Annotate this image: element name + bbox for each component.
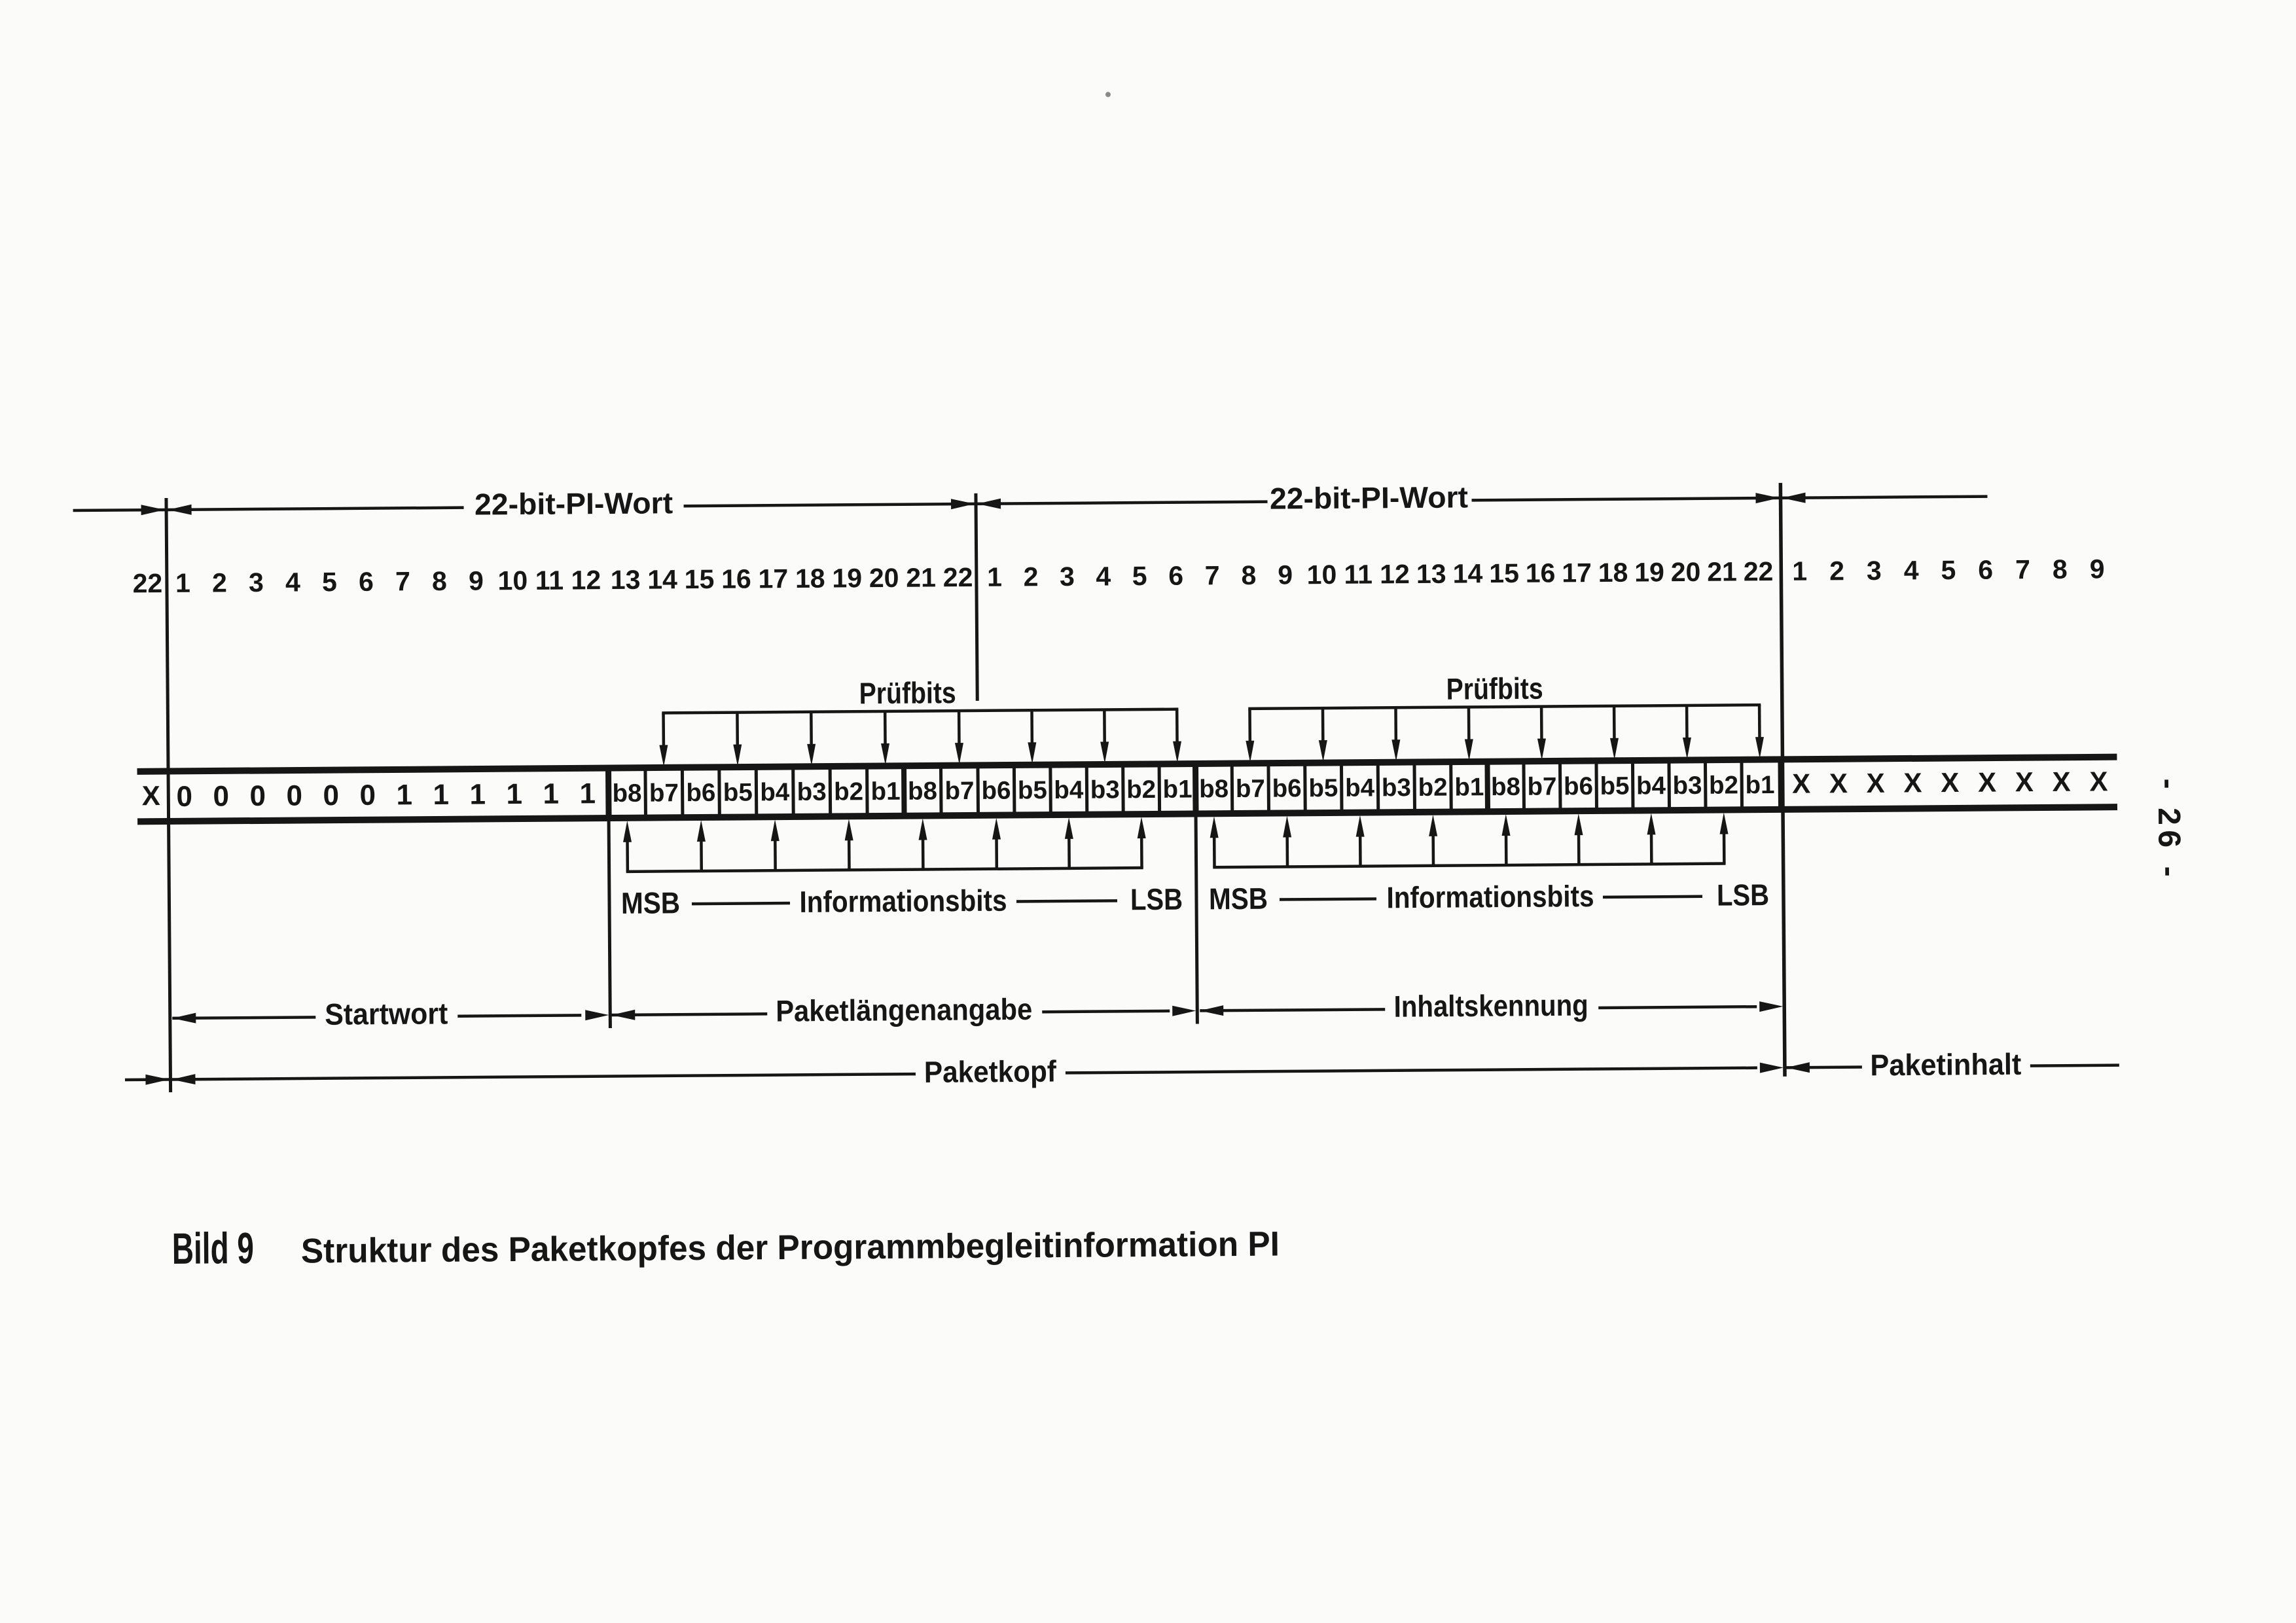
svg-text:2: 2 <box>212 567 227 597</box>
svg-text:1: 1 <box>987 562 1002 592</box>
svg-text:14: 14 <box>1453 558 1483 588</box>
svg-text:19: 19 <box>1634 557 1664 587</box>
svg-text:3: 3 <box>1867 556 1882 586</box>
svg-text:22: 22 <box>943 562 973 592</box>
svg-text:8: 8 <box>432 566 447 596</box>
svg-text:5: 5 <box>322 567 337 597</box>
svg-text:0: 0 <box>323 779 339 811</box>
svg-text:b5: b5 <box>723 778 753 806</box>
svg-text:b3: b3 <box>1382 774 1411 802</box>
svg-text:b6: b6 <box>1564 772 1593 800</box>
svg-text:0: 0 <box>176 781 192 813</box>
svg-text:b2: b2 <box>1126 776 1156 804</box>
svg-text:b8: b8 <box>1199 775 1229 803</box>
svg-text:b6: b6 <box>686 779 715 807</box>
svg-text:6: 6 <box>359 567 374 597</box>
svg-text:LSB: LSB <box>1717 878 1769 912</box>
svg-text:X: X <box>2089 766 2108 796</box>
svg-text:12: 12 <box>571 565 601 595</box>
svg-text:MSB: MSB <box>621 885 680 920</box>
svg-text:9: 9 <box>2090 554 2105 584</box>
svg-text:8: 8 <box>1241 560 1256 590</box>
svg-text:19: 19 <box>832 563 862 593</box>
svg-text:9: 9 <box>469 565 484 596</box>
svg-text:17: 17 <box>758 563 788 594</box>
svg-text:X: X <box>2015 766 2034 797</box>
svg-text:7: 7 <box>1205 560 1220 590</box>
svg-text:X: X <box>1941 767 1959 798</box>
svg-text:b8: b8 <box>1491 773 1520 801</box>
svg-text:7: 7 <box>395 566 410 596</box>
svg-text:5: 5 <box>1132 561 1147 591</box>
svg-text:b1: b1 <box>1454 773 1484 801</box>
svg-text:0: 0 <box>359 779 376 811</box>
svg-text:20: 20 <box>1671 557 1701 587</box>
svg-text:1: 1 <box>1792 556 1807 586</box>
svg-text:15: 15 <box>1489 558 1519 588</box>
svg-text:b3: b3 <box>797 778 827 806</box>
svg-text:X: X <box>142 780 160 811</box>
svg-text:22: 22 <box>1744 556 1774 586</box>
svg-text:b8: b8 <box>612 779 641 808</box>
svg-text:b7: b7 <box>649 779 679 807</box>
svg-text:LSB: LSB <box>1130 882 1183 917</box>
svg-text:20: 20 <box>869 563 899 593</box>
svg-text:12: 12 <box>1380 559 1410 589</box>
svg-text:1: 1 <box>433 779 449 811</box>
svg-text:b2: b2 <box>834 777 863 806</box>
svg-text:b6: b6 <box>981 777 1011 805</box>
svg-text:10: 10 <box>1307 560 1337 590</box>
svg-text:Paketkopf: Paketkopf <box>924 1054 1057 1089</box>
svg-text:b7: b7 <box>1236 775 1265 803</box>
svg-text:22-bit-PI-Wort: 22-bit-PI-Wort <box>475 486 673 521</box>
svg-text:3: 3 <box>1060 562 1075 592</box>
svg-text:b8: b8 <box>908 777 937 805</box>
svg-text:X: X <box>1903 767 1922 798</box>
svg-text:2: 2 <box>1023 562 1038 592</box>
svg-text:18: 18 <box>795 563 825 594</box>
svg-text:16: 16 <box>1526 558 1556 588</box>
svg-text:6: 6 <box>1168 561 1183 591</box>
svg-text:b4: b4 <box>1054 776 1084 804</box>
svg-text:17: 17 <box>1562 558 1592 588</box>
svg-text:14: 14 <box>647 564 677 594</box>
svg-text:Struktur des Paketkopfes der P: Struktur des Paketkopfes der Programmbeg… <box>301 1225 1280 1271</box>
svg-text:1: 1 <box>396 779 412 811</box>
svg-text:b4: b4 <box>760 778 790 806</box>
svg-text:Inhaltskennung: Inhaltskennung <box>1394 988 1588 1024</box>
svg-text:8: 8 <box>2053 554 2068 584</box>
svg-text:11: 11 <box>1344 559 1372 589</box>
svg-text:4: 4 <box>1904 555 1919 585</box>
svg-text:13: 13 <box>611 565 641 595</box>
svg-text:1: 1 <box>469 778 486 810</box>
svg-text:X: X <box>1829 768 1848 798</box>
svg-text:b3: b3 <box>1090 776 1120 804</box>
svg-text:b4: b4 <box>1345 774 1375 802</box>
svg-text:15: 15 <box>685 564 715 594</box>
svg-text:1: 1 <box>579 777 596 810</box>
svg-text:b5: b5 <box>1600 772 1629 800</box>
svg-text:10: 10 <box>497 565 528 596</box>
svg-text:Informationsbits: Informationsbits <box>799 883 1007 919</box>
svg-text:b1: b1 <box>1745 771 1774 799</box>
svg-text:1: 1 <box>175 568 190 598</box>
svg-text:0: 0 <box>286 779 302 811</box>
svg-text:X: X <box>1978 766 1996 797</box>
svg-text:X: X <box>2053 766 2071 797</box>
svg-text:Prüfbits: Prüfbits <box>1446 671 1543 706</box>
svg-text:1: 1 <box>543 778 559 810</box>
svg-text:4: 4 <box>285 567 300 597</box>
svg-text:X: X <box>1867 768 1885 798</box>
svg-text:MSB: MSB <box>1209 882 1268 916</box>
svg-text:b4: b4 <box>1636 772 1666 800</box>
svg-text:b2: b2 <box>1709 771 1738 799</box>
svg-text:9: 9 <box>1278 560 1293 590</box>
svg-text:21: 21 <box>906 562 936 592</box>
svg-text:3: 3 <box>249 567 264 597</box>
svg-text:7: 7 <box>2015 554 2030 584</box>
svg-text:X: X <box>1792 768 1810 799</box>
svg-text:0: 0 <box>213 780 229 812</box>
svg-text:1: 1 <box>506 778 522 810</box>
svg-text:0: 0 <box>249 780 266 812</box>
svg-text:22-bit-PI-Wort: 22-bit-PI-Wort <box>1270 480 1468 515</box>
svg-text:Paketinhalt: Paketinhalt <box>1870 1047 2021 1082</box>
svg-text:b3: b3 <box>1672 772 1702 800</box>
svg-text:5: 5 <box>1941 555 1956 585</box>
svg-text:b7: b7 <box>1527 772 1556 800</box>
svg-text:b1: b1 <box>1162 776 1192 804</box>
svg-text:4: 4 <box>1096 561 1111 591</box>
svg-text:2: 2 <box>1829 556 1844 586</box>
svg-text:Informationsbits: Informationsbits <box>1386 879 1594 914</box>
svg-text:Paketlängenangabe: Paketlängenangabe <box>776 992 1032 1028</box>
svg-text:13: 13 <box>1416 559 1446 589</box>
svg-text:b5: b5 <box>1018 776 1047 804</box>
svg-text:21: 21 <box>1707 556 1737 586</box>
svg-text:b7: b7 <box>944 777 974 805</box>
svg-text:Prüfbits: Prüfbits <box>859 675 956 710</box>
svg-text:Startwort: Startwort <box>325 996 448 1031</box>
svg-text:11: 11 <box>535 565 564 596</box>
svg-text:18: 18 <box>1598 558 1628 588</box>
svg-text:b2: b2 <box>1418 774 1447 802</box>
svg-text:6: 6 <box>1978 555 1993 585</box>
svg-text:Bild 9: Bild 9 <box>172 1224 255 1274</box>
svg-text:22: 22 <box>132 568 162 598</box>
svg-text:b5: b5 <box>1308 774 1338 802</box>
svg-text:b6: b6 <box>1272 774 1301 802</box>
svg-text:16: 16 <box>721 563 751 594</box>
svg-text:b1: b1 <box>870 777 900 806</box>
